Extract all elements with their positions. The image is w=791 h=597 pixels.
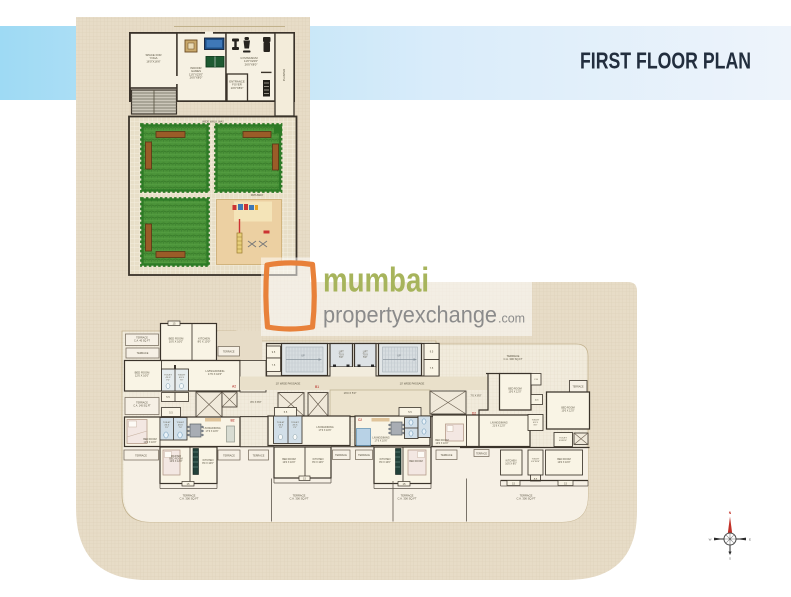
svg-text:10' WIDE PASSAGE: 10' WIDE PASSAGE — [276, 382, 301, 386]
svg-text:A2: A2 — [232, 385, 236, 389]
svg-text:UP: UP — [397, 354, 401, 358]
svg-text:LIVING/DINING17'6 X 10'6": LIVING/DINING17'6 X 10'6" — [203, 427, 220, 433]
svg-text:TERRACE: TERRACE — [137, 352, 149, 355]
svg-text:15: 15 — [173, 322, 176, 326]
svg-text:15: 15 — [303, 477, 306, 481]
svg-text:BED ROOM12'0 X 10'0": BED ROOM12'0 X 10'0" — [143, 438, 156, 444]
svg-text:LIVING/DINING17'6 X 10'6": LIVING/DINING17'6 X 10'6" — [316, 426, 333, 432]
svg-text:TERRACE: TERRACE — [253, 455, 265, 458]
svg-text:BED ROOM10'0 X 10'0": BED ROOM10'0 X 10'0" — [169, 337, 184, 344]
svg-text:TERRACE: TERRACE — [441, 454, 453, 457]
svg-text:BED ROOM10'0 X 12'0": BED ROOM10'0 X 12'0" — [561, 407, 574, 413]
svg-text:TERRACE: TERRACE — [358, 454, 370, 457]
svg-text:E: E — [749, 538, 751, 542]
svg-text:MASTERBED ROOM10'0 X 12'0": MASTERBED ROOM10'0 X 12'0" — [169, 455, 182, 463]
svg-text:TOILET4'6X6'0": TOILET4'6X6'0" — [559, 438, 567, 443]
svg-text:15: 15 — [403, 482, 406, 486]
svg-text:10' WIDE PASSAGE: 10' WIDE PASSAGE — [400, 382, 425, 386]
svg-text:KITCHEN10'0 X 8'0": KITCHEN10'0 X 8'0" — [505, 460, 517, 466]
svg-text:15: 15 — [512, 482, 515, 486]
svg-text:BED ROOM10'0 X 10'0": BED ROOM10'0 X 10'0" — [282, 458, 295, 464]
svg-text:PLANTER: PLANTER — [282, 69, 286, 81]
svg-text:INDOORGAMES11'0"X23'0"26'0"X8': INDOORGAMES11'0"X23'0"26'0"X8'0" — [189, 66, 203, 80]
svg-text:B1: B1 — [315, 385, 319, 389]
svg-text:S: S — [729, 557, 731, 561]
svg-text:LIVING/DINING21'6 X 12'0": LIVING/DINING21'6 X 12'0" — [490, 422, 507, 428]
svg-text:B2: B2 — [230, 419, 234, 423]
svg-text:TERRACE: TERRACE — [135, 455, 147, 458]
svg-text:BED ROOM: BED ROOM — [409, 460, 422, 463]
svg-text:mumbai: mumbai — [323, 262, 429, 300]
svg-text:KITCHEN8'0 X 10'0": KITCHEN8'0 X 10'0" — [312, 458, 324, 464]
svg-text:propertyexchange: propertyexchange — [323, 302, 497, 328]
svg-text:BED ROOM10'0 X 12'0": BED ROOM10'0 X 12'0" — [508, 388, 521, 394]
svg-text:LIVING/DINING17'6 X 10'6": LIVING/DINING17'6 X 10'6" — [206, 369, 225, 376]
svg-text:15: 15 — [564, 482, 567, 486]
svg-text:15: 15 — [187, 482, 190, 486]
svg-text:TOILET4'6"X8'0": TOILET4'6"X8'0" — [531, 459, 540, 464]
svg-text:KITCHEN8'0 X 10'0": KITCHEN8'0 X 10'0" — [198, 337, 211, 344]
svg-text:TERRACE: TERRACE — [335, 454, 347, 457]
svg-text:TERRACE: TERRACE — [223, 455, 235, 458]
svg-text:LIVING/DINING17'6 X 10'6": LIVING/DINING17'6 X 10'6" — [372, 437, 389, 443]
svg-text:TERRACE: TERRACE — [476, 453, 487, 456]
svg-text:PATHWAY: PATHWAY — [251, 193, 264, 197]
svg-text:UP: UP — [301, 354, 305, 358]
svg-text:BED ROOM12'0 X 10'0": BED ROOM12'0 X 10'0" — [135, 371, 150, 378]
svg-text:KITCHEN8'0 X 10'0": KITCHEN8'0 X 10'0" — [379, 458, 391, 464]
svg-text:TERRACE: TERRACE — [223, 351, 235, 354]
svg-text:7'0 X 8'0": 7'0 X 8'0" — [470, 394, 481, 398]
svg-text:TERRACE: TERRACE — [573, 386, 584, 389]
svg-text:FIRST FLOOR PLAN: FIRST FLOOR PLAN — [580, 48, 751, 74]
svg-text:W: W — [709, 538, 712, 542]
svg-text:D2: D2 — [472, 412, 476, 416]
svg-text:BED ROOM10'0 X 10'0": BED ROOM10'0 X 10'0" — [435, 439, 448, 445]
svg-text:C2: C2 — [358, 418, 362, 422]
svg-text:WIDE WALK WAY: WIDE WALK WAY — [202, 120, 224, 124]
svg-text:C.B: C.B — [534, 379, 538, 381]
svg-text:8'0 X 8'0": 8'0 X 8'0" — [250, 400, 261, 404]
svg-text:BED ROOM10'0 X 10'0": BED ROOM10'0 X 10'0" — [557, 458, 570, 464]
svg-text:KITCHEN8'0 X 10'0": KITCHEN8'0 X 10'0" — [202, 459, 214, 465]
svg-text:.com: .com — [498, 312, 525, 326]
svg-text:16'0 X 5'0": 16'0 X 5'0" — [344, 391, 357, 395]
